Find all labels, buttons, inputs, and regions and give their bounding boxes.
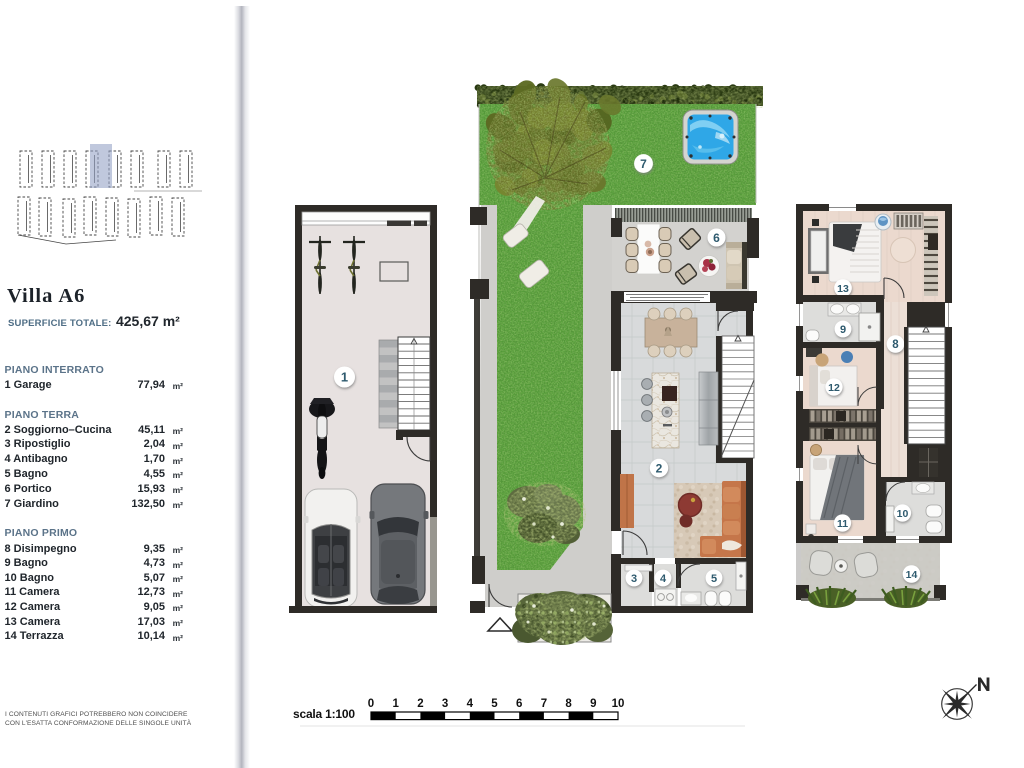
svg-text:3: 3 — [442, 698, 448, 710]
svg-text:9: 9 — [590, 698, 596, 710]
svg-text:4: 4 — [467, 698, 474, 710]
svg-text:2: 2 — [656, 461, 663, 475]
svg-text:11: 11 — [837, 518, 848, 530]
svg-text:8: 8 — [892, 339, 899, 351]
svg-text:9: 9 — [840, 324, 846, 336]
svg-text:7: 7 — [640, 157, 647, 171]
svg-text:5: 5 — [491, 698, 498, 710]
svg-text:1: 1 — [341, 370, 348, 385]
svg-text:14: 14 — [906, 569, 918, 581]
svg-text:8: 8 — [565, 698, 572, 710]
svg-text:2: 2 — [417, 698, 423, 710]
svg-text:10: 10 — [897, 508, 909, 520]
svg-text:7: 7 — [541, 698, 547, 710]
svg-text:1: 1 — [392, 698, 399, 710]
svg-text:6: 6 — [516, 698, 522, 710]
svg-text:13: 13 — [837, 283, 849, 295]
svg-text:6: 6 — [713, 231, 720, 245]
svg-text:4: 4 — [660, 573, 667, 585]
svg-text:5: 5 — [711, 573, 717, 585]
svg-text:3: 3 — [631, 573, 637, 585]
svg-text:0: 0 — [368, 698, 374, 710]
svg-text:10: 10 — [612, 698, 625, 710]
svg-text:12: 12 — [828, 382, 840, 394]
